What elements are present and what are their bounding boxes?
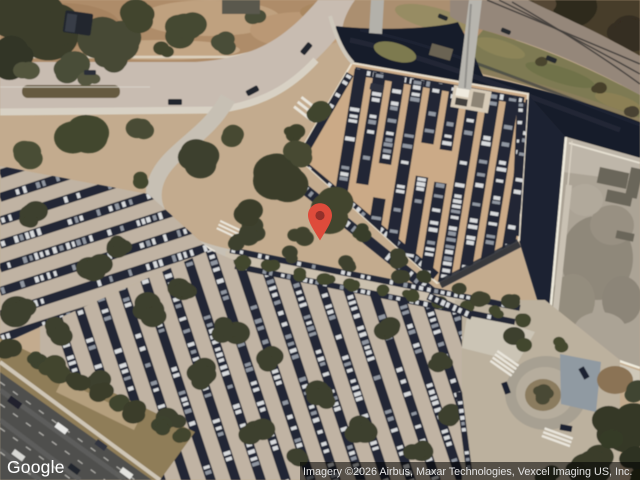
svg-text:Imagery ©2026 Airbus, Maxar Te: Imagery ©2026 Airbus, Maxar Technologies… <box>303 466 632 478</box>
svg-text:Google: Google <box>7 457 65 477</box>
